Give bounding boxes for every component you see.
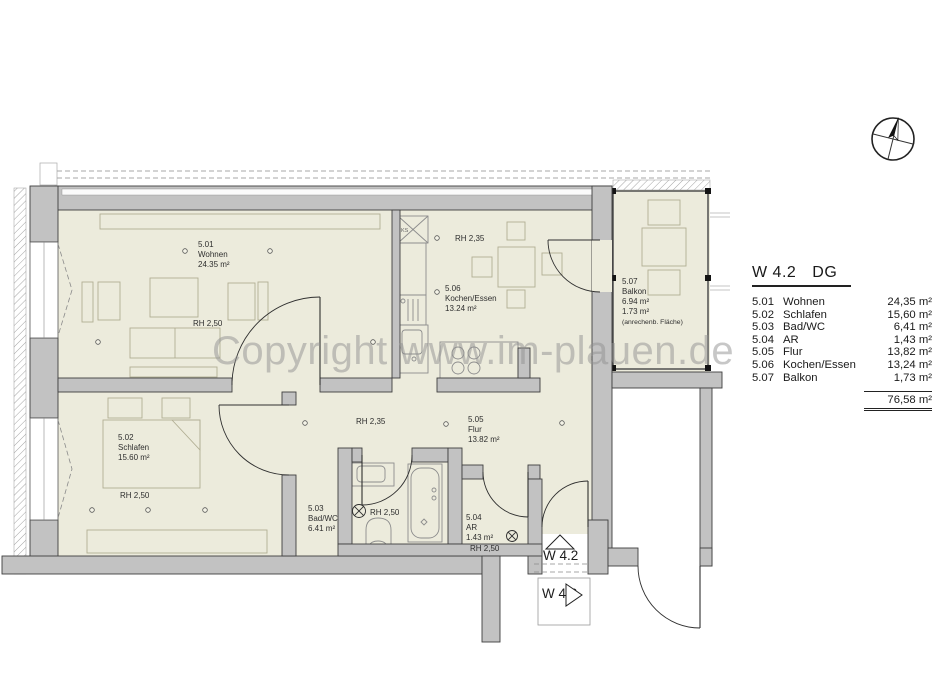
room-area: 15.60 m² [118,453,150,462]
ar-right-wall [528,479,542,574]
reference-lines [710,213,730,290]
corridor-wall [482,556,500,642]
legend-room-number: 5.03 [752,321,783,334]
balcony-door-opening [592,240,612,292]
neighbor-right-wall [700,388,712,566]
room-number: 5.03 [308,504,324,513]
left-hatch-strip [14,188,26,574]
room-area: 1.43 m² [466,533,493,542]
north-arrow-icon [866,112,920,166]
room-number: 5.07 [622,277,638,286]
legend-room-area: 24,35 m² [870,296,932,309]
legend-room-name: Flur [783,346,870,359]
room-name: Balkon [622,287,646,296]
room-name: Kochen/Essen [445,294,497,303]
bath-right-wall [448,448,462,544]
stair-wall [700,548,712,566]
kitchen-hall-wall [437,378,540,392]
legend-room-area: 1,73 m² [870,372,932,385]
legend-unit: W 4.2 [752,264,796,281]
legend-title: W 4.2DG [752,264,851,287]
bath-top-wall [412,448,448,462]
room-number: 5.01 [198,240,214,249]
room-name: Bad/WC [308,514,338,523]
room-height: RH 2,50 [193,319,223,328]
legend-row: 5.06 Kochen/Essen 13,24 m² [752,359,932,372]
legend-floor: DG [812,264,837,281]
ar-top-wall [528,465,540,479]
ar-top-wall [462,465,483,479]
room-area: 24.35 m² [198,260,230,269]
left-wall-segment [30,338,58,418]
unit-entry-label: W 4.2 [543,548,578,563]
legend-total: 76,58 m² [864,391,932,411]
bedroom-wall-stub [282,392,296,405]
bath-top-wall [352,448,362,462]
room-height: RH 2,35 [455,234,485,243]
room-height: RH 2,50 [370,508,400,517]
legend-room-number: 5.07 [752,372,783,385]
legend-room-number: 5.01 [752,296,783,309]
neighbor-wall [612,372,722,388]
legend-room-name: Schlafen [783,309,870,322]
room-number: 5.06 [445,284,461,293]
room-area: 6.94 m² [622,297,649,306]
room-area: 13.24 m² [445,304,477,313]
fridge-label: KS [401,228,409,234]
room-name: AR [466,523,477,532]
room-name: Schlafen [118,443,149,452]
room-area: 6.41 m² [308,524,335,533]
room-number: 5.05 [468,415,484,424]
room-number: 5.04 [466,513,482,522]
copyright-watermark: Copyright www.im-plauen.de [212,329,734,374]
compass [866,112,920,166]
stair-door-arc [638,566,700,628]
living-hall-wall [58,378,232,392]
legend-row: 5.02 Schlafen 15,60 m² [752,309,932,322]
legend-room-name: Kochen/Essen [783,359,870,372]
legend-row: 5.05 Flur 13,82 m² [752,346,932,359]
legend-room-area: 13,82 m² [870,346,932,359]
legend-room-name: Wohnen [783,296,870,309]
room-name: Flur [468,425,482,434]
legend-row: 5.03 Bad/WC 6,41 m² [752,321,932,334]
room-area-note: (anrechenb. Fläche) [622,319,683,326]
bedroom-right-wall [282,475,296,556]
legend-room-number: 5.05 [752,346,783,359]
legend-room-name: Balkon [783,372,870,385]
legend-row: 5.01 Wohnen 24,35 m² [752,296,932,309]
legend-room-name: Bad/WC [783,321,870,334]
top-window-band [62,189,608,195]
room-area: 13.82 m² [468,435,500,444]
room-name: Wohnen [198,250,228,259]
vestibule-right-wall [588,520,608,574]
room-height: RH 2,50 [120,491,150,500]
bath-left-wall [338,448,352,544]
living-hall-wall [320,378,392,392]
legend-room-number: 5.06 [752,359,783,372]
legend-room-area: 15,60 m² [870,309,932,322]
legend-room-area: 6,41 m² [870,321,932,334]
legend-room-number: 5.04 [752,334,783,347]
floorplan-page: KS [0,0,933,700]
stair-wall [608,548,638,566]
room-height: RH 2,35 [356,417,386,426]
bath-bottom-wall [338,544,542,556]
room-area-counted: 1.73 m² [622,307,649,316]
legend-room-area: 13,24 m² [870,359,932,372]
room-number: 5.02 [118,433,134,442]
legend-row: 5.07 Balkon 1,73 m² [752,372,932,385]
left-wall-segment [30,186,58,242]
bottom-exterior-wall [2,556,482,574]
legend-panel: W 4.2DG 5.01 Wohnen 24,35 m² 5.02 Schlaf… [752,264,932,411]
legend-row: 5.04 AR 1,43 m² [752,334,932,347]
legend-room-name: AR [783,334,870,347]
room-height: RH 2,50 [470,544,500,553]
legend-room-number: 5.02 [752,309,783,322]
balcony-top-hatch [613,180,710,190]
legend-room-area: 1,43 m² [870,334,932,347]
wall-step-detail [40,163,57,185]
